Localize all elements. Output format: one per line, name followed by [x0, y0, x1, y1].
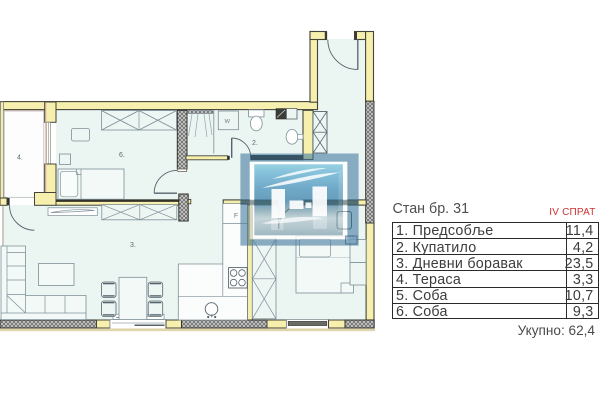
svg-text:3.: 3.: [130, 242, 136, 249]
svg-text:F: F: [234, 213, 238, 220]
svg-text:W: W: [225, 119, 231, 125]
svg-text:2.: 2.: [252, 140, 258, 147]
svg-text:6.: 6.: [119, 152, 125, 159]
svg-text:4.: 4.: [17, 155, 23, 162]
